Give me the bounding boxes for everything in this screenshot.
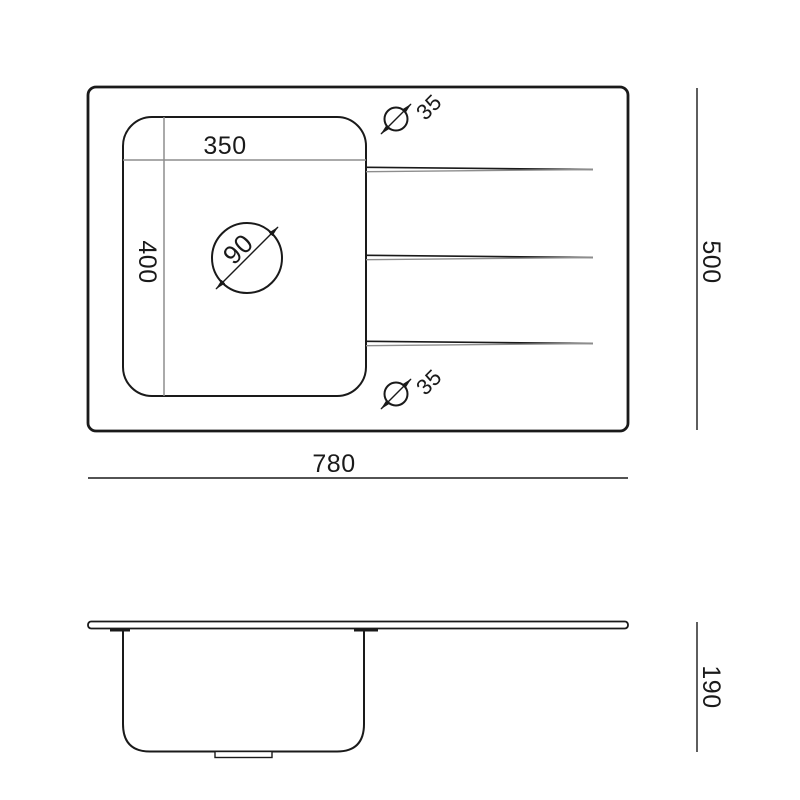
bowl-width-label: 350 bbox=[203, 132, 246, 160]
overall-depth-label: 500 bbox=[697, 240, 725, 283]
top-view: 350 400 90 35 35 500 bbox=[88, 87, 725, 478]
rim-profile bbox=[88, 622, 628, 629]
bowl-profile bbox=[123, 629, 364, 752]
bowl-depth-label: 190 bbox=[697, 665, 725, 708]
drain-stub bbox=[215, 752, 272, 758]
side-view: 190 bbox=[88, 622, 725, 758]
sink-dimension-drawing: 350 400 90 35 35 500 bbox=[0, 0, 800, 800]
overall-width-label: 780 bbox=[312, 450, 355, 478]
bowl-length-label: 400 bbox=[133, 240, 161, 283]
drawing-canvas: 350 400 90 35 35 500 bbox=[0, 0, 800, 800]
